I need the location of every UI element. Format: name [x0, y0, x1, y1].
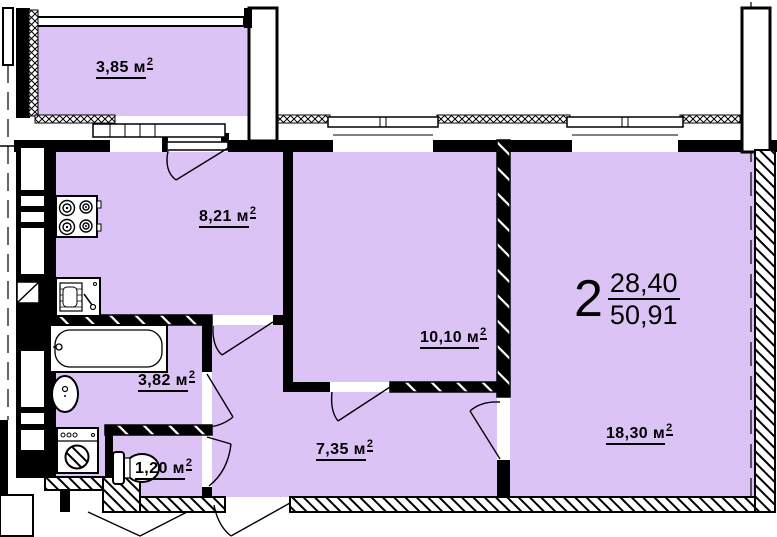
balcony-rail-cap	[244, 8, 252, 28]
shaft	[20, 429, 45, 451]
kitchen-window	[93, 124, 225, 137]
kitchen-sink-icon	[56, 278, 100, 316]
shaft	[20, 227, 45, 275]
stove-icon	[56, 196, 101, 237]
neighbor-door-swing	[88, 512, 187, 536]
apartment-rooms-count: 2	[574, 273, 603, 325]
apartment-living-area: 28,40	[608, 269, 680, 300]
neighbor-door-jamb	[60, 490, 70, 512]
entrance-porch	[0, 495, 33, 536]
facade-strip-3	[680, 115, 740, 123]
wall-kitchen-room10	[283, 140, 293, 392]
apartment-total-area: 50,91	[608, 300, 680, 329]
room18-window	[567, 117, 683, 127]
balcony-left-column	[16, 8, 30, 118]
column-mid	[249, 8, 277, 141]
wall-hall-room18	[497, 140, 510, 397]
wall-right-exterior	[755, 150, 775, 512]
bathtub-icon	[50, 325, 167, 372]
column-right	[742, 8, 770, 152]
wall-room18-stub	[497, 460, 510, 497]
wall-wc-top	[105, 425, 212, 435]
wall-room10-bottom-1	[283, 382, 330, 392]
wall-top-2	[228, 140, 333, 152]
balcony-area-label: 3,85 м2	[96, 57, 153, 77]
shaft	[20, 350, 45, 408]
windows	[93, 117, 683, 150]
wall-bath-bottom	[45, 477, 103, 490]
room18-area-label: 18,30 м2	[606, 423, 673, 443]
wc-area-label: 1,20 м2	[135, 458, 192, 478]
shaft	[20, 412, 45, 425]
wall-bottom-left	[0, 420, 8, 496]
kitchen-area-label: 8,21 м2	[199, 206, 256, 226]
bathroom-area-label: 3,82 м2	[138, 370, 195, 390]
wash-basin-icon	[52, 376, 78, 412]
balcony-parapet-bottom	[35, 115, 115, 123]
wall-bottom-main	[290, 497, 757, 512]
hallway-area-label: 7,35 м2	[316, 439, 373, 459]
apartment-areas-fraction: 28,40 50,91	[608, 269, 680, 330]
floor-plan: 3,85 м2 8,21 м2 10,10 м2 18,30 м2 3,82 м…	[0, 0, 777, 537]
apartment-info-label: 2 28,40 50,91	[574, 269, 680, 330]
balcony-parapet-left	[29, 10, 38, 116]
washing-machine-icon	[57, 428, 98, 473]
shaft	[20, 147, 45, 191]
wall-room10-bottom-2	[390, 382, 497, 392]
facade-strip-1	[278, 115, 330, 123]
room10-window	[328, 117, 438, 127]
shaft	[20, 211, 45, 223]
balcony-railing	[30, 17, 244, 26]
left-wall-fragment	[3, 8, 13, 65]
wall-top-4	[678, 140, 742, 152]
wc-door-jamb	[202, 487, 212, 497]
facade-strip-2	[437, 115, 570, 123]
room10-area-label: 10,10 м2	[420, 327, 487, 347]
wall-bottom-wc	[140, 497, 225, 512]
shaft	[20, 195, 45, 207]
balcony-door-threshold	[167, 142, 228, 150]
